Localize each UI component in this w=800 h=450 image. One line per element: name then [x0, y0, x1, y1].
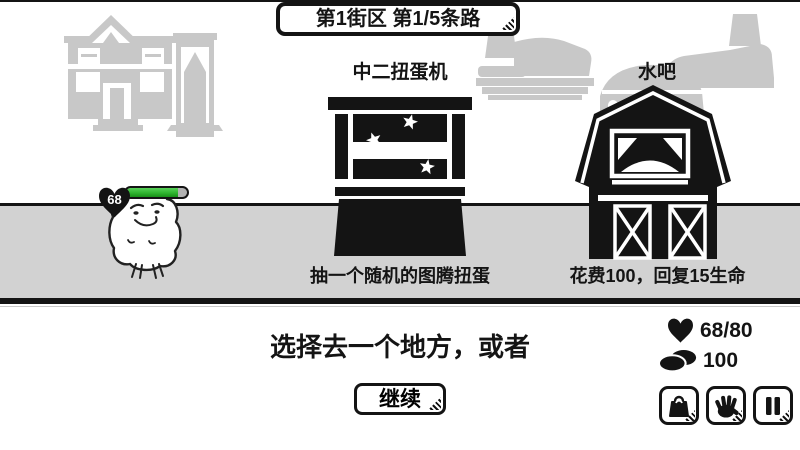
hp-stat: 68/80 — [666, 316, 753, 345]
bag-button[interactable] — [659, 386, 699, 425]
gacha-machine-icon[interactable] — [326, 95, 474, 260]
coins-stat-value: 100 — [703, 349, 738, 373]
street-banner-text: 第1街区 第1/5条路 — [316, 8, 480, 30]
coins-icon — [658, 346, 698, 375]
banner-corner-hatch — [501, 17, 514, 30]
ground-underline — [0, 306, 800, 307]
hp-heart-badge: 68 — [97, 184, 132, 221]
continue-button-label: 继续 — [379, 388, 421, 411]
location-desc-gacha: 抽一个随机的图腾扭蛋 — [285, 262, 515, 288]
action-buttons — [659, 386, 793, 425]
continue-button[interactable]: 继续 — [354, 383, 446, 415]
location-desc-barn: 花费100，回复15生命 — [545, 262, 770, 288]
street-banner: 第1街区 第1/5条路 — [276, 2, 520, 36]
hand-button[interactable] — [706, 386, 746, 425]
game-screen: 中二扭蛋机 抽一个随机的图腾扭蛋 水吧 — [0, 0, 800, 450]
location-title-gacha: 中二扭蛋机 — [300, 57, 500, 84]
hp-badge-value: 68 — [107, 192, 121, 207]
heart-icon — [666, 316, 695, 345]
choice-prompt: 选择去一个地方，或者 — [200, 327, 600, 364]
location-title-barn: 水吧 — [557, 57, 757, 84]
pause-icon — [760, 393, 786, 419]
coins-stat: 100 — [658, 346, 738, 375]
hp-stat-value: 68/80 — [700, 319, 753, 343]
bag-icon — [666, 393, 692, 419]
hp-bar — [124, 186, 189, 199]
barn-icon[interactable] — [565, 84, 737, 260]
hp-bar-fill — [126, 188, 178, 197]
hand-icon — [713, 392, 740, 419]
pause-button[interactable] — [753, 386, 793, 425]
continue-corner-hatch — [428, 397, 441, 410]
